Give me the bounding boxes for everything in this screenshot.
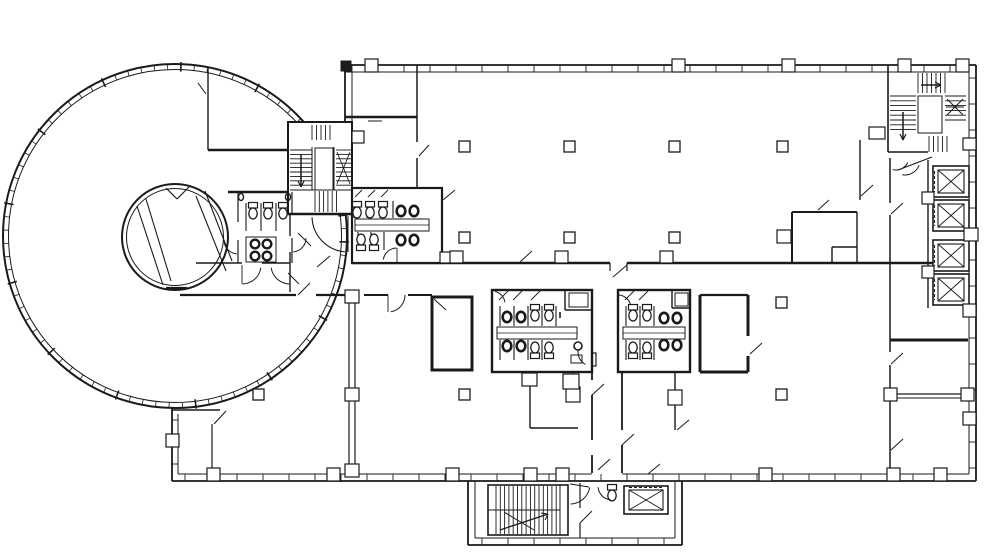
column-tab (166, 434, 179, 447)
column (459, 232, 470, 243)
toilet-bowl (531, 310, 539, 321)
door-leaf (677, 420, 689, 430)
column-tab (450, 251, 463, 263)
toilet (366, 202, 375, 219)
column-tab (759, 468, 772, 481)
door-leaf (419, 145, 429, 156)
door-leaf (861, 185, 873, 196)
toilet-bowl (531, 342, 539, 353)
door-leaf (750, 343, 762, 354)
door-leaf (891, 439, 903, 450)
door-leaf (520, 251, 532, 262)
curtain-wall-mullions (18, 165, 23, 167)
column-tab (963, 138, 976, 150)
door-leaf (298, 283, 310, 295)
toilet (249, 203, 258, 220)
curtain-wall-mullions (25, 318, 30, 321)
column-tab (898, 59, 911, 72)
toilet (545, 342, 554, 359)
toilet-tank (643, 353, 652, 359)
column (776, 389, 787, 400)
curtain-wall-mullions (287, 109, 291, 113)
door-leaf (648, 464, 660, 474)
door-leaf (434, 299, 446, 310)
toilet-tank (608, 485, 617, 491)
curtain-wall-mullions (90, 86, 93, 91)
toilet-tank (370, 245, 379, 251)
column-tab (884, 388, 897, 401)
sink (263, 240, 272, 249)
curtain-wall-mullions (306, 339, 310, 342)
door-swing (391, 295, 405, 312)
column-tab (777, 230, 791, 243)
curtain-wall-mullions (48, 120, 52, 124)
toilet (353, 202, 362, 219)
fixture-box (522, 373, 537, 386)
door-swing (243, 268, 261, 284)
curtain-wall-mullions (115, 75, 117, 80)
door-leaf (317, 256, 330, 267)
round-wing-outer-wall (3, 64, 347, 408)
column (253, 389, 264, 400)
curtain-wall-mullions (278, 100, 281, 104)
floor-plan-svg (0, 0, 995, 559)
sink (251, 240, 260, 249)
curtain-wall-mullions (32, 141, 37, 144)
column-tab (963, 412, 976, 425)
column-tab (934, 468, 947, 481)
toilet-tank (531, 353, 540, 359)
curtain-wall-mullions (58, 110, 62, 114)
curtain-wall-mullions (13, 177, 18, 179)
door-leaf (198, 83, 206, 94)
curtain-wall-mullions (69, 367, 72, 371)
shear-room (432, 297, 472, 370)
curtain-wall-mullions (104, 388, 106, 393)
curtain-wall-mullions (59, 359, 63, 363)
toilet-bowl (379, 207, 387, 218)
toilet-bowl (629, 310, 637, 321)
column-tab (869, 127, 885, 139)
atrium-circle-inner (127, 189, 224, 286)
column-tab (345, 290, 359, 303)
door-leaf (443, 190, 455, 200)
toilet-bowl (545, 342, 553, 353)
column-tab (668, 390, 682, 405)
column-tab (352, 131, 364, 143)
column-tab (672, 59, 685, 72)
door-swing (271, 268, 289, 284)
fixture-box (563, 374, 579, 389)
curtain-wall-mullions (233, 392, 235, 397)
toilet-tank (357, 245, 366, 251)
curtain-wall-mullions (79, 93, 82, 98)
column-tab (961, 388, 974, 401)
column-tab (556, 468, 569, 481)
toilet (357, 234, 366, 251)
door-swing (893, 162, 908, 170)
column-tab (956, 59, 969, 72)
curtain-wall-mullions (232, 74, 234, 79)
toilet-tank (545, 305, 554, 311)
door-leaf (818, 200, 829, 210)
atrium-notch (166, 188, 177, 199)
toilet-bowl (643, 310, 651, 321)
round-wing-wall-inner-line (9, 70, 342, 403)
toilet-bowl (357, 234, 365, 245)
curtain-wall-mullions (32, 329, 37, 332)
column (669, 141, 680, 152)
curtain-wall-mullions (267, 93, 270, 98)
toilet-tank (531, 305, 540, 311)
atrium-chord (137, 206, 163, 285)
toilet-tank (264, 203, 273, 209)
curtain-wall-mullions (80, 375, 83, 380)
column-tab (964, 228, 978, 241)
column-tab (922, 192, 934, 204)
curtain-wall-mullions (245, 387, 247, 392)
toilet-bowl (629, 342, 637, 353)
toilet (608, 485, 617, 502)
curtain-wall-mullions (279, 366, 282, 370)
curtain-wall-mullions (25, 153, 30, 156)
column-tab (327, 468, 340, 481)
corner-column (341, 61, 351, 71)
curtain-wall-mullions (314, 328, 319, 331)
curtain-wall-mullions (257, 381, 260, 386)
atrium-chord (146, 199, 171, 281)
toilet-bowl (264, 208, 272, 219)
column (564, 232, 575, 243)
column-tab (345, 388, 359, 401)
toilet (643, 342, 652, 359)
toilet-bowl (545, 310, 553, 321)
sink (251, 252, 260, 261)
toilet-bowl (249, 208, 257, 219)
toilet (264, 203, 273, 220)
curtain-wall-mullions (68, 101, 71, 105)
toilet-tank (643, 305, 652, 311)
door-swing (293, 238, 306, 252)
sink (263, 252, 272, 261)
toilet (531, 342, 540, 359)
curtain-wall-mullions (40, 340, 44, 343)
column-tab (887, 468, 900, 481)
toilet-tank (279, 203, 288, 209)
door-leaf (891, 353, 903, 364)
door-leaf (622, 434, 634, 445)
toilet-bowl (279, 208, 287, 219)
toilet-tank (353, 202, 362, 208)
column (776, 297, 787, 308)
column (777, 141, 788, 152)
toilet-tank (379, 202, 388, 208)
column-tab (446, 468, 459, 481)
toilet (370, 234, 379, 251)
door-leaf (592, 384, 604, 395)
column (564, 141, 575, 152)
toilet (643, 305, 652, 322)
column (669, 232, 680, 243)
column (459, 389, 470, 400)
toilet-tank (629, 353, 638, 359)
column-tab (555, 251, 568, 263)
column-tab (782, 59, 795, 72)
door-swing (312, 217, 345, 252)
atrium-chord (205, 191, 232, 261)
column-tab (207, 468, 220, 481)
column-tab (524, 468, 537, 481)
toilet-bowl (366, 207, 374, 218)
door-leaf (580, 511, 592, 523)
stair-landing (918, 96, 942, 133)
column-tab (365, 59, 378, 72)
toilet-tank (545, 353, 554, 359)
door-leaf (598, 459, 610, 470)
fixture (239, 194, 244, 201)
toilet (379, 202, 388, 219)
toilet (279, 203, 288, 220)
toilet-tank (629, 305, 638, 311)
toilet (629, 305, 638, 322)
door-leaf (891, 203, 903, 214)
curtain-wall-mullions (14, 294, 19, 296)
column-tab (963, 304, 976, 317)
curtain-wall-mullions (298, 348, 302, 352)
toilet (545, 305, 554, 322)
curtain-wall-mullions (327, 305, 332, 307)
door-leaf (214, 411, 226, 424)
column-tab (660, 251, 673, 263)
door-leaf (613, 265, 627, 277)
curtain-wall-mullions (19, 306, 24, 308)
toilet (531, 305, 540, 322)
toilet-bowl (370, 234, 378, 245)
column (459, 141, 470, 152)
column-tab (922, 266, 934, 278)
curtain-wall-mullions (289, 358, 293, 362)
column-tab (345, 464, 359, 477)
toilet-tank (366, 202, 375, 208)
floor-plan-canvas (0, 0, 995, 559)
toilet (629, 342, 638, 359)
curtain-wall-mullions (92, 382, 95, 387)
toilet-tank (249, 203, 258, 209)
toilet-bowl (353, 207, 361, 218)
curtain-wall-mullions (244, 79, 246, 84)
toilet-bowl (643, 342, 651, 353)
